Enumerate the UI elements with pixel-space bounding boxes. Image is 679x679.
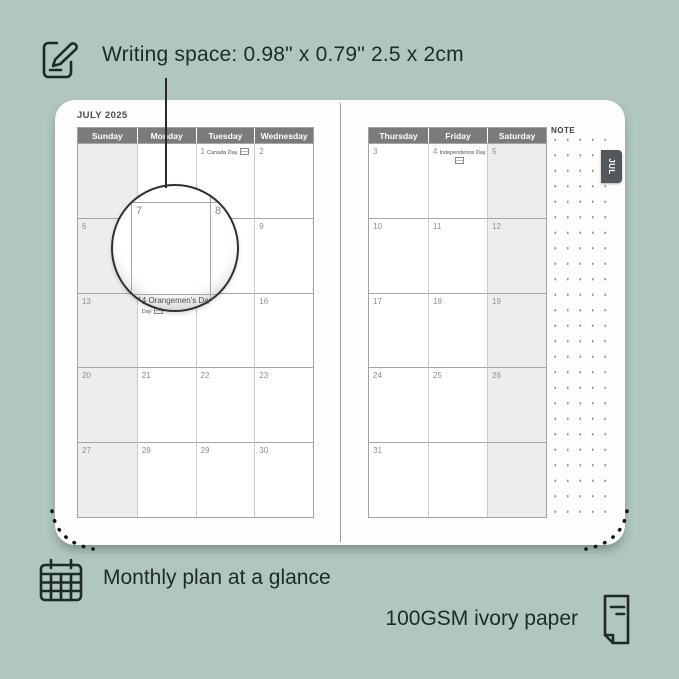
calendar-cell: 12 [487,218,546,293]
page-spine [340,103,341,542]
monthly-plan-annotation: Monthly plan at a glance [103,566,331,590]
day-number: 1 [201,147,205,156]
magnified-grid-line [210,186,211,310]
magnified-grid-line [113,202,237,203]
day-number: 11 [433,222,441,231]
day-number: 19 [492,297,501,306]
writing-space-annotation: Writing space: 0.98" x 0.79" 2.5 x 2cm [102,43,464,67]
calendar-cell: 3 [369,143,428,218]
calendar-cell: 20 [78,367,137,442]
holiday-label: Canada Day [207,150,238,156]
day-number: 2 [259,147,263,156]
day-number: 3 [373,147,377,156]
day-number: 22 [201,371,210,380]
day-number: 18 [433,297,442,306]
calendar-cell: 4Independence Day [428,143,487,218]
day-number: 24 [373,371,382,380]
paper-annotation: 100GSM ivory paper [385,607,578,631]
day-number: 10 [373,222,382,231]
day-number: 31 [373,446,382,455]
calendar-cell: 18 [428,293,487,368]
magnified-grid-line [131,186,132,310]
planner-spread: JULY 2025 SundayMondayTuesdayWednesday1C… [55,100,625,545]
day-number: 20 [82,371,91,380]
day-number: 5 [492,147,496,156]
calendar-cell [487,442,546,517]
flag-icon [455,157,464,164]
calendar-cell: 30 [254,442,313,517]
month-tab-jul: JUL [601,150,622,183]
calendar-cell: 31 [369,442,428,517]
day-number: 28 [142,446,151,455]
calendar-cell: 24 [369,367,428,442]
writing-pencil-icon [40,35,80,81]
calendar-cell: 21 [137,367,196,442]
calendar-cell: 27 [78,442,137,517]
calendar-cell: 17 [369,293,428,368]
note-dot-grid [547,128,608,520]
weekday-header: Thursday [369,128,428,143]
day-number: 29 [201,446,210,455]
calendar-cell: 19 [487,293,546,368]
calendar-cell: 25 [428,367,487,442]
day-number: 13 [82,297,91,306]
day-number: 27 [82,446,91,455]
day-number: 25 [433,371,442,380]
weekday-header: Tuesday [196,128,255,143]
calendar-cell: 9 [254,218,313,293]
month-title: JULY 2025 [77,110,128,121]
day-number: 12 [492,222,501,231]
calendar-cell: 29 [196,442,255,517]
calendar-cell: 5 [487,143,546,218]
day-number: 30 [259,446,268,455]
day-number: 4 [433,147,437,156]
magnifier-circle: 7 8 14 Orangemen's Day [111,184,239,312]
calendar-cell: 16 [254,293,313,368]
holiday-label: Independence Day [439,150,485,156]
flag-icon [240,148,249,155]
calendar-icon [38,558,84,603]
calendar-cell: 22 [196,367,255,442]
day-number: 17 [373,297,382,306]
note-label: NOTE [551,126,578,136]
weekday-header: Wednesday [254,128,313,143]
day-number: 6 [82,222,86,231]
weekday-header: Saturday [487,128,546,143]
day-number: 23 [259,371,268,380]
calendar-cell: 2 [254,143,313,218]
weekday-header: Friday [428,128,487,143]
magnified-day-7: 7 [136,205,142,217]
magnified-holiday-caption: 14 Orangemen's Day [113,296,237,305]
calendar-cell: 10 [369,218,428,293]
calendar-cell: 26 [487,367,546,442]
day-number: 16 [259,297,268,306]
weekday-header: Sunday [78,128,137,143]
calendar-grid-right: ThursdayFridaySaturday34Independence Day… [368,127,547,518]
day-number: 21 [142,371,151,380]
calendar-grid-left: SundayMondayTuesdayWednesday1Canada Day2… [77,127,314,518]
calendar-cell: 28 [137,442,196,517]
paper-icon [599,594,634,646]
day-number: 9 [259,222,263,231]
calendar-cell: 23 [254,367,313,442]
magnified-day-8: 8 [215,205,221,217]
month-tab-label: JUL [607,158,616,175]
day-number: 26 [492,371,501,380]
magnified-grid-line [113,294,237,295]
calendar-cell: 11 [428,218,487,293]
callout-connector-line [165,78,167,188]
calendar-cell [428,442,487,517]
